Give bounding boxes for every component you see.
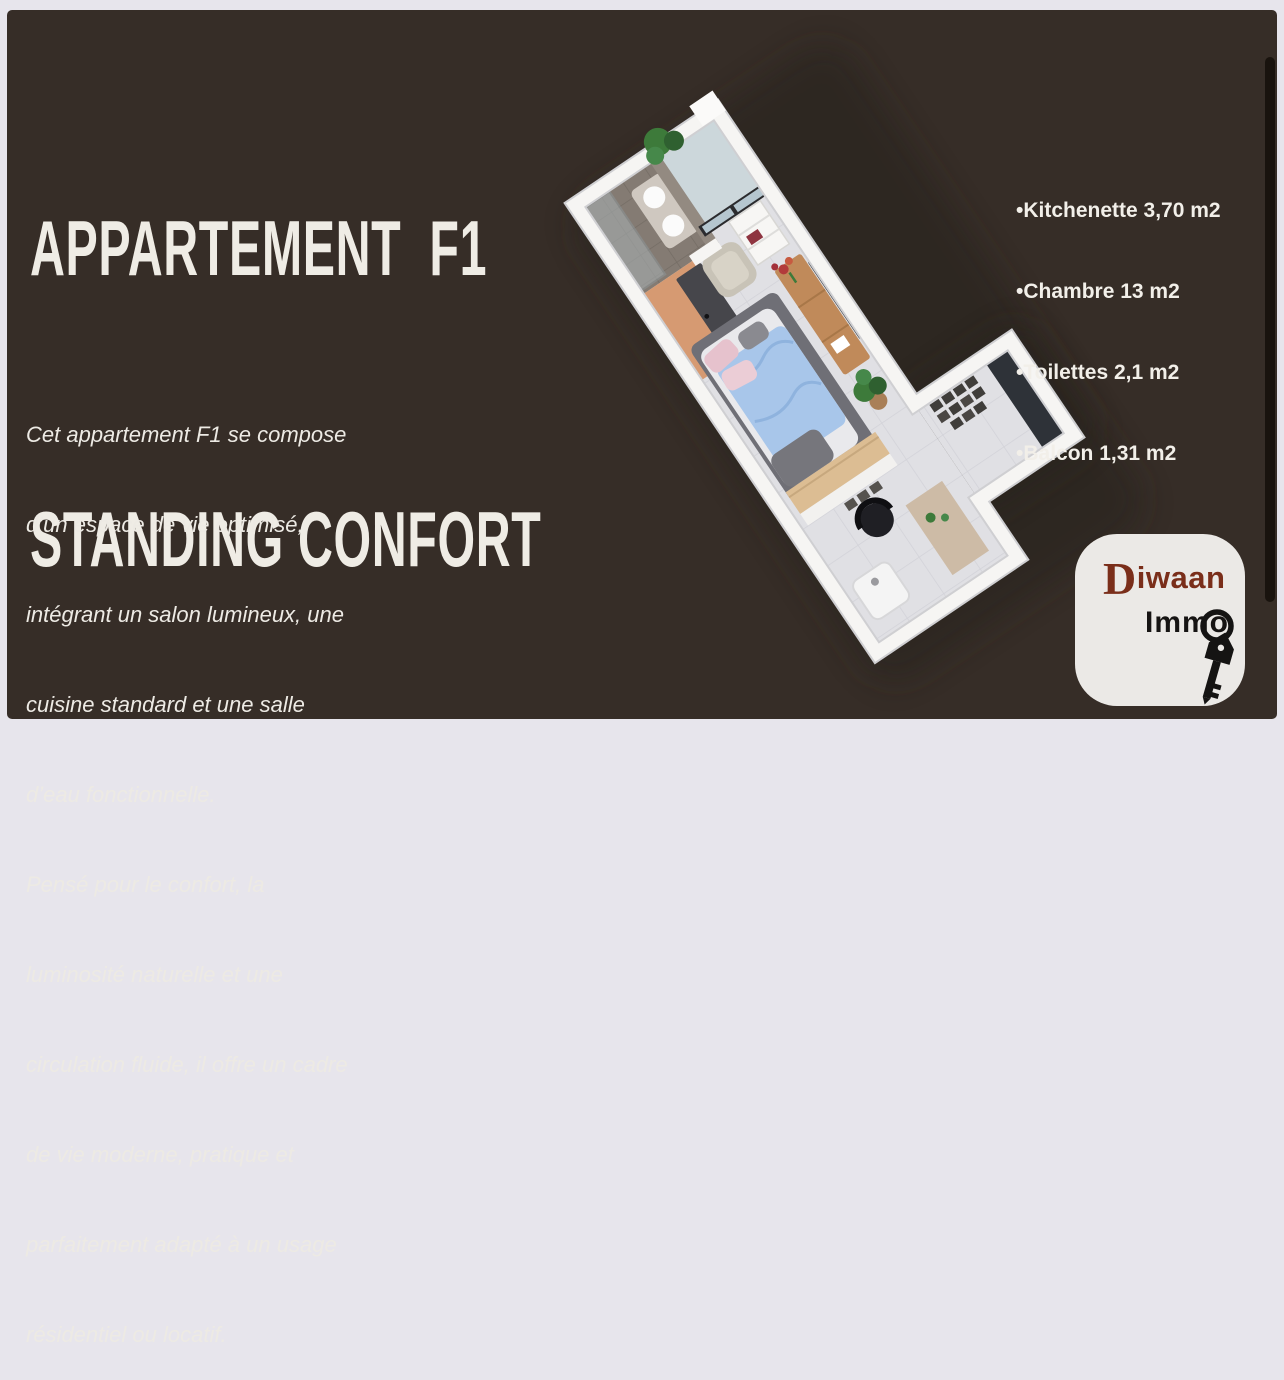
scrollbar-thumb[interactable] (1265, 57, 1275, 602)
area-item-toilettes: •Toilettes 2,1 m2 (1016, 359, 1221, 386)
description-line: d’eau fonctionnelle. (26, 780, 348, 810)
flyer-page: { "frame": { "outer_bg": "#e7e5ec", "car… (0, 0, 1284, 726)
diwaan-immo-logo: Diwaan Immo (1075, 534, 1245, 706)
description-line: intégrant un salon lumineux, une (26, 600, 348, 630)
description-line: cuisine standard et une salle (26, 690, 348, 720)
room-areas-list: •Kitchenette 3,70 m2 •Chambre 13 m2 •Toi… (1016, 143, 1221, 494)
description-line: Pensé pour le confort, la (26, 870, 348, 900)
description-text: Cet appartement F1 se compose d’un espac… (26, 360, 348, 1380)
area-item-balcon: •Balcon 1,31 m2 (1016, 440, 1221, 467)
description-line: luminosité naturelle et une (26, 960, 348, 990)
description-line: d’un espace de vie optimisé, (26, 510, 348, 540)
description-line: parfaitement adapté à un usage (26, 1230, 348, 1260)
description-line: Cet appartement F1 se compose (26, 420, 348, 450)
area-item-chambre: •Chambre 13 m2 (1016, 278, 1221, 305)
description-line: de vie moderne, pratique et (26, 1140, 348, 1170)
key-icon (1075, 534, 1245, 706)
description-line: résidentiel ou locatif. (26, 1320, 348, 1350)
title-line-1: APPARTEMENT F1 (30, 200, 541, 297)
area-item-kitchenette: •Kitchenette 3,70 m2 (1016, 197, 1221, 224)
description-line: circulation fluide, il offre un cadre (26, 1050, 348, 1080)
